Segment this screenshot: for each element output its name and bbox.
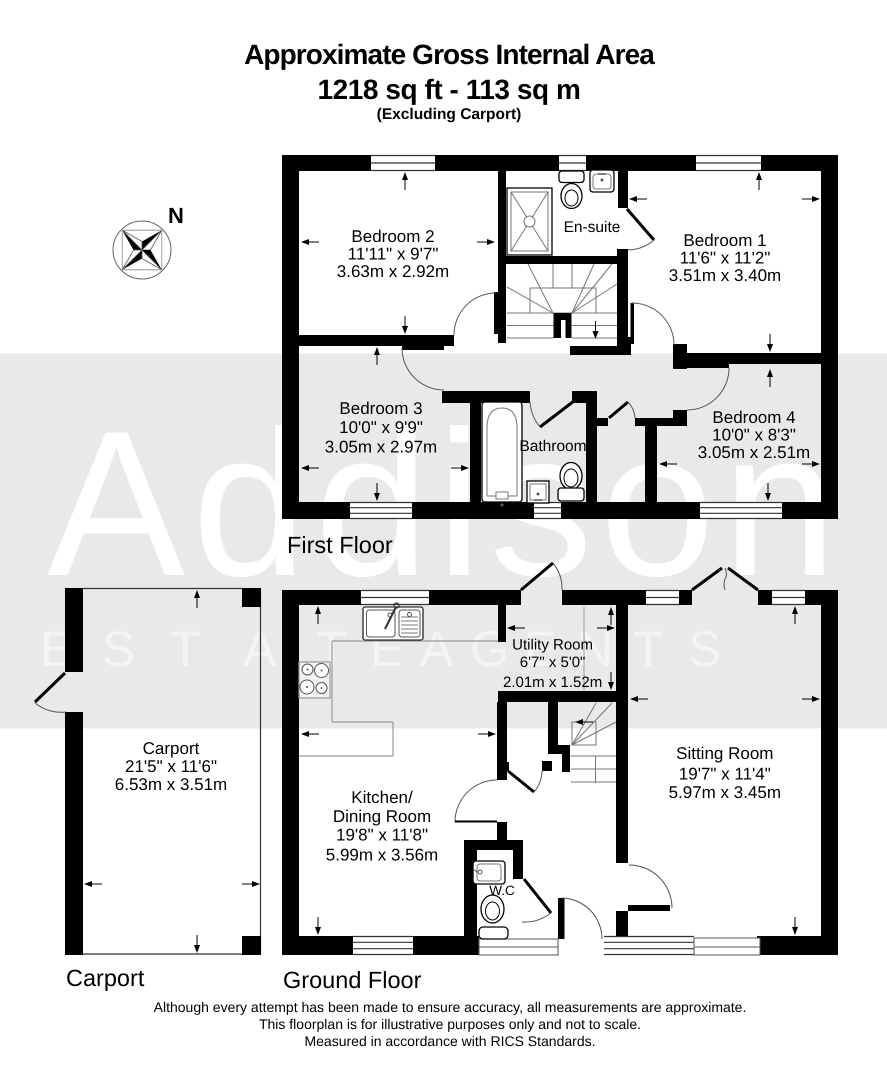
svg-text:First Floor: First Floor xyxy=(287,532,393,558)
svg-text:19'8" x 11'8": 19'8" x 11'8" xyxy=(336,826,428,845)
svg-text:N: N xyxy=(168,203,184,228)
svg-text:(Excluding Carport): (Excluding Carport) xyxy=(377,106,522,123)
svg-text:En-suite: En-suite xyxy=(564,219,621,236)
svg-text:6'7" x 5'0": 6'7" x 5'0" xyxy=(520,654,586,671)
svg-text:2.01m x 1.52m: 2.01m x 1.52m xyxy=(503,674,602,691)
svg-text:Bedroom 2: Bedroom 2 xyxy=(351,227,434,246)
svg-text:Utility Room: Utility Room xyxy=(512,637,593,654)
svg-text:3.05m x 2.97m: 3.05m x 2.97m xyxy=(325,438,437,457)
svg-text:Approximate Gross Internal Are: Approximate Gross Internal Area xyxy=(244,39,655,70)
svg-text:Kitchen/: Kitchen/ xyxy=(351,788,413,807)
svg-text:10'0" x 9'9": 10'0" x 9'9" xyxy=(339,418,423,437)
svg-text:Carport: Carport xyxy=(143,739,200,758)
svg-text:Dining Room: Dining Room xyxy=(333,807,431,826)
svg-text:19'7" x 11'4": 19'7" x 11'4" xyxy=(679,765,771,784)
svg-text:Sitting Room: Sitting Room xyxy=(676,744,773,763)
svg-text:5.97m x 3.45m: 5.97m x 3.45m xyxy=(669,783,781,802)
svg-text:W.C: W.C xyxy=(489,883,515,898)
svg-text:A: A xyxy=(420,621,454,677)
svg-text:S: S xyxy=(688,621,721,677)
svg-text:T: T xyxy=(633,621,664,677)
svg-text:Although every attempt has bee: Although every attempt has been made to … xyxy=(154,999,747,1015)
svg-text:21'5" x 11'6": 21'5" x 11'6" xyxy=(125,757,217,776)
svg-text:Bedroom 3: Bedroom 3 xyxy=(339,399,422,418)
svg-text:11'6" x 11'2": 11'6" x 11'2" xyxy=(680,249,771,268)
svg-text:6.53m x 3.51m: 6.53m x 3.51m xyxy=(115,775,227,794)
svg-text:Measured in accordance with RI: Measured in accordance with RICS Standar… xyxy=(304,1033,595,1049)
svg-text:Bedroom 1: Bedroom 1 xyxy=(683,231,766,250)
svg-text:S: S xyxy=(102,621,135,677)
svg-text:Bedroom 4: Bedroom 4 xyxy=(712,408,795,427)
svg-text:Carport: Carport xyxy=(66,965,145,991)
svg-text:3.51m x 3.40m: 3.51m x 3.40m xyxy=(669,266,781,285)
svg-text:3.63m x 2.92m: 3.63m x 2.92m xyxy=(337,262,449,281)
svg-text:11'11" x 9'7": 11'11" x 9'7" xyxy=(348,245,439,264)
svg-text:5.99m x 3.56m: 5.99m x 3.56m xyxy=(326,846,438,865)
svg-text:3.05m x 2.51m: 3.05m x 2.51m xyxy=(698,443,810,462)
svg-text:This floorplan is for illustra: This floorplan is for illustrative purpo… xyxy=(259,1016,641,1032)
svg-text:10'0" x 8'3": 10'0" x 8'3" xyxy=(712,426,796,445)
svg-text:Bathroom: Bathroom xyxy=(519,438,586,455)
svg-text:T: T xyxy=(170,621,201,677)
svg-text:1218 sq ft - 113 sq m: 1218 sq ft - 113 sq m xyxy=(318,74,581,105)
svg-text:Ground Floor: Ground Floor xyxy=(283,967,422,993)
